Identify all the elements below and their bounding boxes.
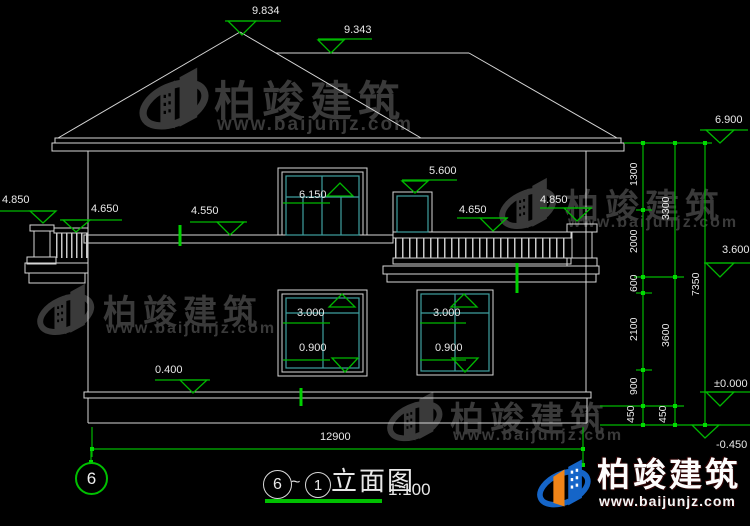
level-window1-top: 3.000 [297, 308, 325, 319]
plinth-band [84, 392, 591, 398]
axis-bubble-label: 6 [87, 469, 96, 489]
dim-7350: 7350 [691, 262, 702, 306]
level-window2-top: 3.000 [433, 308, 461, 319]
brand-site: www.baijunjz.com [599, 494, 736, 508]
dim-3600: 3600 [661, 313, 672, 357]
brand-logo-icon [536, 452, 598, 514]
level-ridge: 9.343 [344, 25, 372, 36]
level-left-newel: 4.850 [2, 195, 30, 206]
title-axis-from: 6 [263, 470, 292, 499]
cad-elevation-drawing: 柏竣建筑 www.baijunjz.com 柏竣建筑 www.baijunjz.… [0, 0, 750, 526]
level-peak: 9.834 [252, 6, 280, 17]
dim-2100: 2100 [629, 307, 640, 351]
brand-name: 柏竣建筑 [597, 458, 741, 491]
dim-3300: 3300 [661, 186, 672, 230]
dimension-ticks [89, 141, 707, 467]
dim-450-inner: 450 [626, 392, 637, 436]
title-separator: ~ [291, 475, 300, 491]
axis-bubble-6: 6 [75, 462, 108, 495]
level-window2-sill: 0.900 [435, 343, 463, 354]
building-outline [25, 32, 624, 423]
right-balusters [395, 238, 570, 258]
right-balcony-bottom-rail [393, 258, 571, 264]
level-window1-sill: 0.900 [299, 343, 327, 354]
right-newel-cap [567, 224, 597, 232]
level-right-rail: 4.650 [459, 205, 487, 216]
small-window-frame [393, 192, 432, 232]
dim-600: 600 [629, 261, 640, 305]
level-second-floor: 3.600 [722, 245, 750, 256]
dim-total-width: 12900 [320, 432, 351, 443]
parapet-rail [84, 235, 393, 243]
eave-fascia [52, 143, 624, 151]
dim-2000: 2000 [629, 219, 640, 263]
level-right-newel: 4.850 [540, 195, 568, 206]
balcony-slab [383, 266, 599, 274]
dim-1300: 1300 [629, 152, 640, 196]
dim-450-middle: 450 [658, 392, 669, 436]
eave-band-top [55, 138, 621, 143]
right-newel-body [572, 232, 592, 258]
title-axis-to: 1 [305, 472, 331, 498]
level-parapet: 4.550 [191, 206, 219, 217]
left-balusters [56, 233, 88, 258]
level-small-window: 5.600 [429, 166, 457, 177]
drawing-scale: 1:100 [388, 481, 431, 498]
level-zero: ±0.000 [714, 379, 748, 390]
level-balcony-door: 6.150 [299, 190, 327, 201]
left-newel-cap [30, 225, 54, 231]
level-eave: 6.900 [715, 115, 743, 126]
left-newel-body [34, 231, 50, 257]
level-plinth: 0.400 [155, 365, 183, 376]
level-left-rail: 4.650 [91, 204, 119, 215]
title-underline [265, 499, 382, 503]
level-grade: -0.450 [716, 440, 747, 451]
